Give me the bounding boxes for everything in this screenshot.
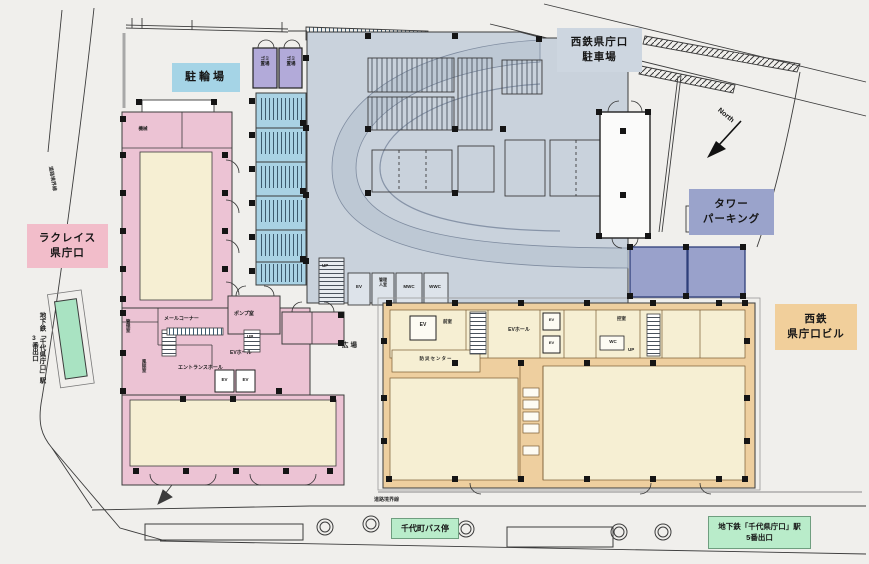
room-mwc: MWC (396, 284, 422, 289)
room-up-orange: UP (628, 347, 634, 352)
room-machine: 機械 (130, 126, 156, 131)
room-up-pink: UP (247, 334, 253, 339)
bicycle-parking-strip (256, 93, 306, 285)
label-bus-stop: 千代町バス停 (391, 518, 459, 539)
room-ev-hall-orange: EVホール (496, 328, 542, 334)
room-zenshitsu: 前室 (443, 319, 452, 324)
room-pump: ポンプ室 (234, 312, 254, 318)
road-boundary-label-bottom: 道路境界線 (374, 498, 399, 504)
room-wwc: WWC (422, 284, 448, 289)
room-mail-corner: メールコーナー (164, 317, 199, 323)
room-kanri: 管理室 (126, 312, 131, 340)
street-trees (317, 516, 671, 540)
label-tower-parking: タワー パーキング (689, 189, 774, 235)
room-kanrinin: 管理 人室 (372, 278, 394, 287)
tower-parking-structure (630, 247, 745, 297)
label-bicycle-parking: 駐輪場 (172, 63, 240, 92)
label-lacreis: ラクレイス 県庁口 (27, 224, 108, 268)
room-ev-parking: EV (348, 284, 370, 289)
room-fujo: 風除室 (142, 352, 147, 380)
room-ev-5: EV (543, 318, 560, 323)
room-garbage-2: ゴミ 置場 (280, 56, 302, 66)
room-ev-1: EV (215, 377, 234, 382)
room-up-parking: UP (322, 263, 328, 268)
subway-exit3-structure (47, 290, 94, 388)
label-subway-exit5: 地下鉄「千代県庁口」駅 5番出口 (708, 516, 811, 549)
room-wc: WC (601, 339, 625, 344)
room-hikae: 控室 (617, 316, 626, 321)
label-nishitetsu-parking: 西鉄県庁口 駐車場 (557, 28, 642, 72)
room-bousai-center: 防災センター (398, 356, 474, 361)
room-ev-orange: EV (410, 323, 436, 329)
room-ev-2: EV (236, 377, 255, 382)
site-plan-drawing (0, 0, 869, 564)
room-ev-6: EV (543, 341, 560, 346)
room-garbage-1: ゴミ 置場 (254, 56, 276, 66)
plaza-label: 広場 (342, 342, 359, 349)
label-nishitetsu-building: 西鉄 県庁口ビル (775, 304, 857, 350)
site-plan: 駐輪場 西鉄県庁口 駐車場 タワー パーキング 西鉄 県庁口ビル ラクレイス 県… (0, 0, 869, 564)
label-subway-exit3: 地下鉄「千代県庁口」駅 3番出口 (30, 292, 45, 404)
room-ev-hall-pink: EVホール (230, 351, 252, 357)
room-entrance-hall: エントランスホール (178, 366, 223, 372)
north-arrow-icon (707, 121, 741, 158)
